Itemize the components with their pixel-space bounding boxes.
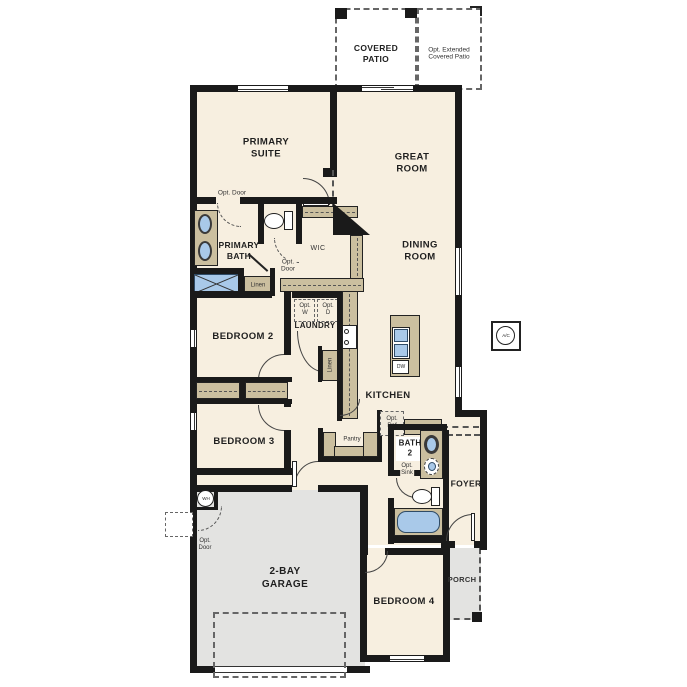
opt-sink-label: Opt. Sink xyxy=(400,463,414,477)
pantry-label: Pantry xyxy=(343,437,360,444)
bathtub xyxy=(397,511,440,533)
window-bedroom2 xyxy=(191,330,196,347)
wall-garage-right xyxy=(360,485,368,555)
wall-bedroom3-right xyxy=(284,399,291,407)
closet-bedroom3 xyxy=(245,382,288,399)
patio-post xyxy=(335,8,347,19)
foyer-label: FOYER xyxy=(451,478,482,489)
wall-bedroom3-bottom xyxy=(190,468,296,475)
kitchen-label: KITCHEN xyxy=(365,390,410,402)
wall-bath2-bottom xyxy=(388,536,447,543)
patio-sliding-door xyxy=(362,86,413,91)
wic-label: WIC xyxy=(310,245,325,253)
kitchen-cabinet-dashed xyxy=(349,294,350,416)
dining-room-label: DINING ROOM xyxy=(402,240,438,265)
window-dining xyxy=(456,248,461,295)
dashed-line xyxy=(442,426,479,428)
water-heater-label: WH xyxy=(202,496,210,502)
wall-bedroom4-right xyxy=(443,541,450,662)
bath2-label: BATH 2 xyxy=(399,439,422,460)
opt-d-label: Opt. D xyxy=(322,303,333,317)
opt-door-wic-label: Opt. Door xyxy=(280,259,296,274)
wic-shelf-bottom xyxy=(280,278,364,292)
window-primary-suite xyxy=(238,86,288,91)
pantry-shelf xyxy=(363,432,378,457)
bedroom2-label: BEDROOM 2 xyxy=(212,331,273,343)
great-room-label: GREAT ROOM xyxy=(395,152,430,177)
linen-hall-label: Linen xyxy=(328,358,335,373)
garage-door-dashed xyxy=(213,612,346,678)
window-bedroom4 xyxy=(390,656,424,661)
extended-patio-label: Opt. Extended Covered Patio xyxy=(428,47,470,62)
vanity-sink xyxy=(198,241,212,261)
door-leaf-garage xyxy=(292,461,297,487)
wall-bedroom4-top xyxy=(385,548,450,555)
bedroom4-label: BEDROOM 4 xyxy=(373,596,434,608)
wic-shelf-top xyxy=(302,206,358,218)
wall-suite-bottom xyxy=(190,197,216,204)
covered-patio-label: COVERED PATIO xyxy=(354,43,398,65)
porch-label: PORCH xyxy=(448,575,477,585)
wall-bath2-left xyxy=(388,424,394,472)
island-sink-basin xyxy=(394,344,408,357)
wall-closet-bottom xyxy=(190,399,292,404)
bath2-sink xyxy=(424,435,439,454)
vanity-sink xyxy=(198,214,212,234)
closet-bedroom2 xyxy=(196,382,240,399)
wall-toilet-nook xyxy=(296,197,302,244)
opt-door-garage-box xyxy=(165,512,193,537)
garage-label: 2-BAY GARAGE xyxy=(262,565,308,591)
toilet-bowl xyxy=(264,213,284,229)
patio-corner-mark xyxy=(470,6,482,16)
toilet-tank xyxy=(284,211,293,230)
wall-stub xyxy=(323,168,337,177)
wall-hall xyxy=(190,291,272,298)
floor-plan: COVERED PATIO Opt. Extended Covered Pati… xyxy=(0,0,687,687)
wall-front xyxy=(474,541,487,548)
porch-corner-post xyxy=(472,612,482,622)
laundry-label: LAUNDRY xyxy=(295,321,336,331)
kitchen-faucet xyxy=(344,329,349,334)
wall-bedroom2-right xyxy=(284,291,291,355)
front-door-leaf xyxy=(471,513,475,541)
linen-bath-label: Linen xyxy=(251,283,266,290)
wall-garage-top xyxy=(318,485,367,492)
opt-sink-basin xyxy=(428,462,436,471)
toilet-bowl-bath2 xyxy=(412,489,432,504)
opt-door-garage-label: Opt. Door xyxy=(198,538,211,552)
window-bedroom3 xyxy=(191,413,196,430)
toilet-tank-bath2 xyxy=(431,487,440,506)
foyer-dashed xyxy=(447,434,480,436)
opt-door-suite-label: Opt. Door xyxy=(216,189,248,196)
kitchen-faucet xyxy=(344,340,349,345)
wic-shelf-right xyxy=(350,235,363,279)
island-sink-basin xyxy=(394,329,408,342)
wall-suite-right xyxy=(330,92,337,170)
wall-suite-bottom xyxy=(240,197,337,204)
bedroom3-label: BEDROOM 3 xyxy=(213,436,274,448)
primary-suite-label: PRIMARY SUITE xyxy=(243,137,289,162)
ac-unit-label: A/C xyxy=(502,333,510,339)
dishwasher-label: DW xyxy=(397,364,405,371)
window-dining-2 xyxy=(456,367,461,397)
wall-top xyxy=(190,85,462,92)
opt-w-label: Opt. W xyxy=(299,303,310,317)
patio-post xyxy=(405,8,417,18)
